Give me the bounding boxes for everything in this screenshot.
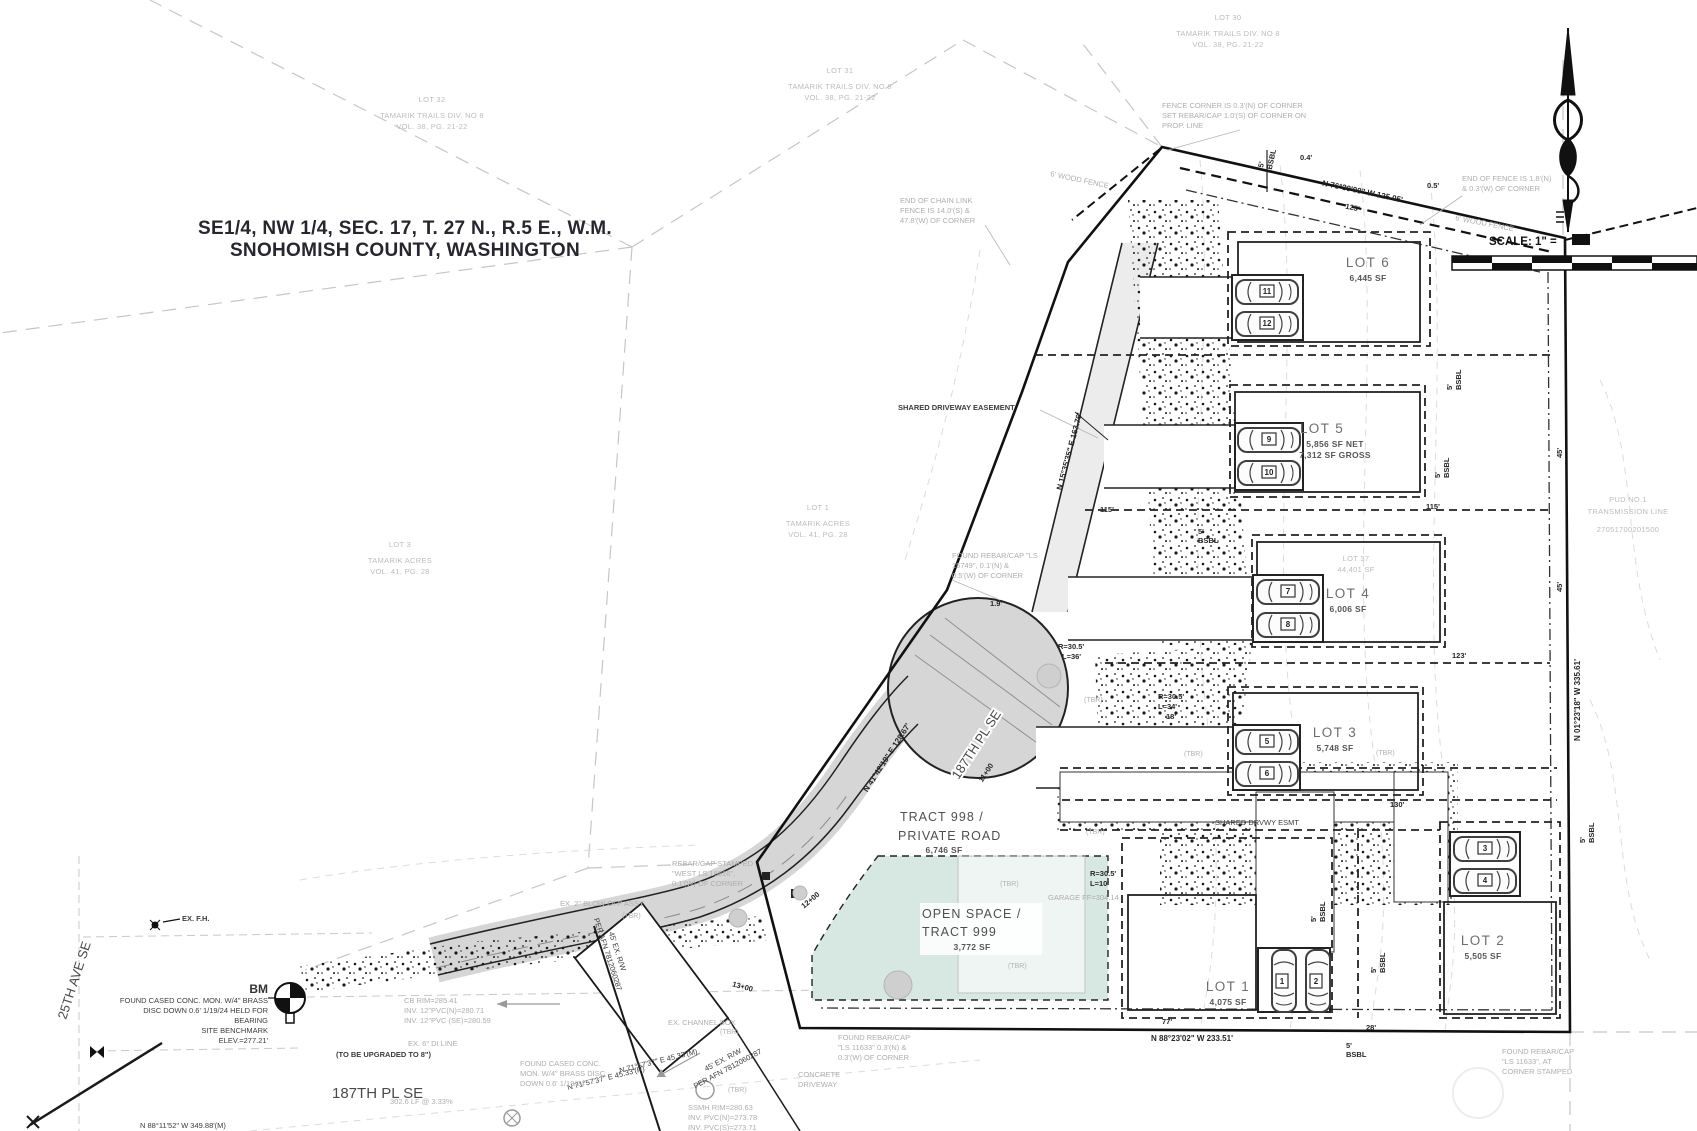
adjacent-lot30-1: LOT 30: [1215, 13, 1242, 22]
utility-lines: [79, 856, 900, 1131]
scale-value-block: [1572, 234, 1590, 245]
adjacent-lot30-3: VOL. 38, PG. 21-22: [1192, 40, 1263, 49]
lot-4-area: 6,006 SF: [1330, 604, 1367, 614]
dim-19: 1.9': [990, 599, 1002, 608]
adjacent-tam3-1: LOT 3: [389, 540, 411, 549]
note-ex-fh: EX. F.H.: [182, 914, 210, 923]
pud-line2: TRANSMISSION LINE: [1588, 507, 1669, 516]
car-stall-9: 9: [1267, 435, 1272, 444]
svg-text:(TBR): (TBR): [1000, 881, 1019, 888]
lot-5-area-net: 5,856 SF NET: [1306, 439, 1364, 449]
note-rebar11633b-1: FOUND REBAR/CAP: [838, 1033, 910, 1042]
note-shared-drvwy2: SHARED DRVWY ESMT: [1215, 818, 1299, 827]
bearing-bottom: N 88°23'02" W 233.51': [1151, 1034, 1233, 1043]
note-rebar-west-2: "WEST LS 16816",: [672, 869, 735, 878]
dim-125: 125': [1345, 202, 1361, 214]
benchmark-note-4: SITE BENCHMARK: [201, 1026, 268, 1035]
note-fence-corner-2: SET REBAR/CAP 1.0'(S) OF CORNER ON: [1162, 111, 1306, 120]
lot-6-area: 6,445 SF: [1350, 273, 1387, 283]
car-stall-1: 1: [1280, 977, 1285, 986]
note-rebar11633a-3: CORNER STAMPED: [1502, 1067, 1573, 1076]
svg-text:(TBR): (TBR): [1008, 963, 1027, 970]
note-cased-mon-2: MON. W/4" BRASS DISC: [520, 1069, 606, 1078]
dim-123: 123': [1452, 651, 1467, 660]
benchmark-note-1: FOUND CASED CONC. MON. W/4" BRASS: [120, 996, 268, 1005]
note-rw-b: 45' EX. R/W PER AFN 7812060287: [687, 1038, 763, 1090]
note-ssmh-2: INV. PVC(N)=273.78: [688, 1113, 757, 1122]
svg-text:5': 5': [1433, 472, 1442, 478]
dim-18: 18': [1166, 712, 1176, 721]
note-fence-corner-1: FENCE CORNER IS 0.3'(N) OF CORNER: [1162, 101, 1303, 110]
note-wood-fence-a: 6' WOOD FENCE: [1050, 169, 1110, 190]
dim-05: 0.5': [1427, 181, 1439, 190]
lot-5-area-gross: 7,312 SF GROSS: [1299, 450, 1371, 460]
underlying-lot37-2: 44,401 SF: [1337, 565, 1374, 574]
svg-text:BSBL: BSBL: [1454, 369, 1463, 390]
car-stall-12: 12: [1263, 319, 1272, 328]
dim-45a: 45': [1555, 448, 1564, 458]
svg-text:(TBR): (TBR): [728, 1087, 747, 1094]
car-stall-6: 6: [1265, 769, 1270, 778]
note-cased-mon-1: FOUND CASED CONC.: [520, 1059, 601, 1068]
dim-04: 0.4': [1300, 153, 1312, 162]
tract-998-line2: PRIVATE ROAD: [898, 829, 1001, 843]
note-blowoff: EX. 2" BLOW OFF ASSY: [560, 899, 644, 908]
dim-115a: 115': [1426, 502, 1440, 511]
note-cased-mon-3: DOWN 0.6' 1/19/24: [520, 1079, 585, 1088]
dim-r305-c: R=30.5': [1058, 642, 1084, 651]
note-shared-driveway: SHARED DRIVEWAY EASEMENT: [898, 403, 1015, 412]
dim-l10: L=10': [1090, 879, 1109, 888]
note-basis-bearing: N 88°11'52" W 349.88'(M): [140, 1121, 226, 1130]
dim-r305-a: R=30.5': [1158, 692, 1184, 701]
svg-text:BSBL: BSBL: [1587, 822, 1596, 843]
dim-l36: L=36': [1062, 652, 1081, 661]
adjacent-tam3-2: TAMARIK ACRES: [368, 556, 432, 565]
lot-4-label: LOT 4: [1326, 586, 1370, 601]
note-chain-link-3: 47.8'(W) OF CORNER: [900, 216, 976, 225]
svg-text:5': 5': [1578, 837, 1587, 843]
lot-5-label: LOT 5: [1300, 421, 1344, 436]
adjacent-lot31-3: VOL. 38, PG. 21-22: [804, 93, 875, 102]
note-chain-link-2: FENCE IS 14.0'(S) &: [900, 206, 970, 215]
note-fence-corner-3: PROP. LINE: [1162, 121, 1203, 130]
note-cb-1: CB RIM=285.41: [404, 996, 458, 1005]
note-wood-fence-b: 6' WOOD FENCE: [1455, 213, 1515, 233]
svg-text:5': 5': [1445, 384, 1454, 390]
dim-l34: L=34': [1158, 702, 1177, 711]
pud-line1: PUD NO.1: [1609, 495, 1647, 504]
note-end-fence-2: & 0.3'(W) OF CORNER: [1462, 184, 1541, 193]
car-stall-5: 5: [1265, 737, 1270, 746]
lot-1-area: 4,075 SF: [1210, 997, 1247, 1007]
adjacent-lot31-1: LOT 31: [827, 66, 854, 75]
sheet-title-line2: SNOHOMISH COUNTY, WASHINGTON: [230, 240, 580, 261]
adjacent-lot30-2: TAMARIK TRAILS DIV. NO 8: [1176, 29, 1280, 38]
adjacent-lot32-3: VOL. 38, PG. 21-22: [396, 122, 467, 131]
fire-hydrant-icon: [150, 919, 180, 930]
water-valve-icon: [90, 1046, 104, 1058]
adjacent-lot32-2: TAMARIK TRAILS DIV. NO 8: [380, 111, 484, 120]
adjacent-tam1-3: VOL. 41, PG. 28: [788, 530, 848, 539]
adjacent-lot31-2: TAMARIK TRAILS DIV. NO 8: [788, 82, 892, 91]
dim-45b: 45': [1555, 582, 1564, 592]
note-rebar15749-3: 0.5'(W) OF CORNER: [952, 571, 1024, 580]
adjacent-tam3-3: VOL. 41, PG. 28: [370, 567, 430, 576]
note-ssmh-3: INV. PVC(S)=273.71: [688, 1123, 757, 1131]
scale-label: SCALE: 1" =: [1489, 236, 1557, 248]
car-stall-10: 10: [1265, 468, 1274, 477]
note-conc-drive-1: CONCRETE: [798, 1070, 840, 1079]
adjacent-tam1-1: LOT 1: [807, 503, 829, 512]
svg-text:5': 5': [1369, 967, 1378, 973]
lot-6-label: LOT 6: [1346, 255, 1390, 270]
benchmark-note-5: ELEV.=277.21': [219, 1036, 269, 1045]
car-stall-11: 11: [1263, 287, 1272, 296]
svg-text:(TBR): (TBR): [622, 913, 641, 920]
dim-77: 77': [1162, 1017, 1172, 1026]
svg-text:BSBL: BSBL: [1198, 536, 1219, 545]
tract-999-line2: TRACT 999: [922, 925, 997, 939]
dim-115b: 115': [1100, 505, 1114, 514]
note-ssmh-1: SSMH RIM=280.63: [688, 1103, 753, 1112]
tract-999-area: 3,772 SF: [954, 942, 991, 952]
svg-text:5': 5': [1346, 1041, 1352, 1050]
car-stall-8: 8: [1286, 620, 1291, 629]
benchmark-label: BM: [249, 982, 268, 996]
north-arrow-icon: [1555, 28, 1582, 232]
lot-2-area: 5,505 SF: [1465, 951, 1502, 961]
lot-1-label: LOT 1: [1206, 979, 1250, 994]
underlying-lot37-1: LOT 37: [1343, 554, 1370, 563]
lot-3-area: 5,748 SF: [1317, 743, 1354, 753]
sheet-title-line1: SE1/4, NW 1/4, SEC. 17, T. 27 N., R.5 E.…: [198, 218, 612, 239]
note-end-fence-1: END OF FENCE IS 1.8'(N): [1462, 174, 1552, 183]
car-stall-7: 7: [1286, 587, 1291, 596]
svg-text:BSBL: BSBL: [1442, 457, 1451, 478]
lot-2-label: LOT 2: [1461, 933, 1505, 948]
benchmark-note-2: DISC DOWN 0.6' 1/19/24 HELD FOR: [143, 1006, 268, 1015]
svg-text:(TBR): (TBR): [1084, 697, 1103, 704]
note-conc-drive-2: DRIVEWAY: [798, 1080, 837, 1089]
note-rebar15749-2: 15749", 0.1'(N) &: [952, 561, 1009, 570]
car-stall-3: 3: [1483, 844, 1488, 853]
note-grade: 302.6 LF @ 3.33%: [390, 1097, 453, 1106]
dim-r305-b: R=30.5': [1090, 869, 1116, 878]
street-25th-ave-se: 25TH AVE SE: [55, 939, 94, 1021]
lot-3-label: LOT 3: [1313, 725, 1357, 740]
note-chain-link-1: END OF CHAIN LINK: [900, 196, 973, 205]
svg-text:(TBR): (TBR): [1086, 829, 1105, 836]
note-cb-2: INV. 12"PVC(N)=280.71: [404, 1006, 484, 1015]
benchmark-note-3: BEARING: [234, 1016, 268, 1025]
bearing-right: N 01°23'18" W 335.61': [1573, 659, 1582, 741]
car-stall-2: 2: [1314, 977, 1319, 986]
note-di-line: EX. 6" DI LINE: [408, 1039, 457, 1048]
note-cb-3: INV. 12"PVC (SE)=280.59: [404, 1016, 491, 1025]
note-rebar11633a-2: "LS 11633", AT: [1502, 1057, 1552, 1066]
svg-text:(TBR): (TBR): [720, 1029, 739, 1036]
note-rebar11633b-3: 0.3'(W) OF CORNER: [838, 1053, 910, 1062]
site-plan-drawing: 11 12 9 10 7 8 5 6 3 4 1 2: [0, 0, 1697, 1131]
adjacent-lot32-1: LOT 32: [419, 95, 446, 104]
benchmark-icon: [268, 983, 305, 1023]
note-rebar15749-1: FOUND REBAR/CAP "LS: [952, 551, 1038, 560]
note-rebar11633b-2: "LS 11633" 0.3'(N) &: [838, 1043, 906, 1052]
svg-text:BSBL: BSBL: [1378, 952, 1387, 973]
ghost-circle: [1453, 1068, 1503, 1118]
tract-998-line1: TRACT 998 /: [900, 810, 984, 824]
svg-text:5': 5': [1309, 916, 1318, 922]
svg-text:(TBR): (TBR): [1376, 750, 1395, 757]
dim-130: 130': [1390, 800, 1405, 809]
tract-998-area: 6,746 SF: [926, 845, 963, 855]
svg-text:(TBR): (TBR): [1184, 751, 1203, 758]
note-rebar11633a-1: FOUND REBAR/CAP: [1502, 1047, 1574, 1056]
svg-text:BSBL: BSBL: [1346, 1050, 1367, 1059]
note-channel: EX. CHANNEL BOX: [668, 1018, 736, 1027]
adjacent-tam1-2: TAMARIK ACRES: [786, 519, 850, 528]
flow-arrow-icon: [497, 1000, 507, 1008]
svg-text:5': 5': [1198, 527, 1204, 536]
tract-999-line1: OPEN SPACE /: [922, 907, 1021, 921]
note-rebar-west-1: REBAR/CAP STAMPED: [672, 859, 754, 868]
dim-28: 28': [1366, 1023, 1376, 1032]
car-stall-4: 4: [1483, 876, 1488, 885]
note-garage-ff: GARAGE FF=304.14: [1048, 893, 1119, 902]
note-upgraded: (TO BE UPGRADED TO 8"): [336, 1050, 431, 1059]
svg-text:BSBL: BSBL: [1318, 901, 1327, 922]
note-rebar-west-3: 0.1'(W) OF CORNER: [672, 879, 744, 888]
pud-parcel: 27051700201500: [1597, 525, 1660, 534]
